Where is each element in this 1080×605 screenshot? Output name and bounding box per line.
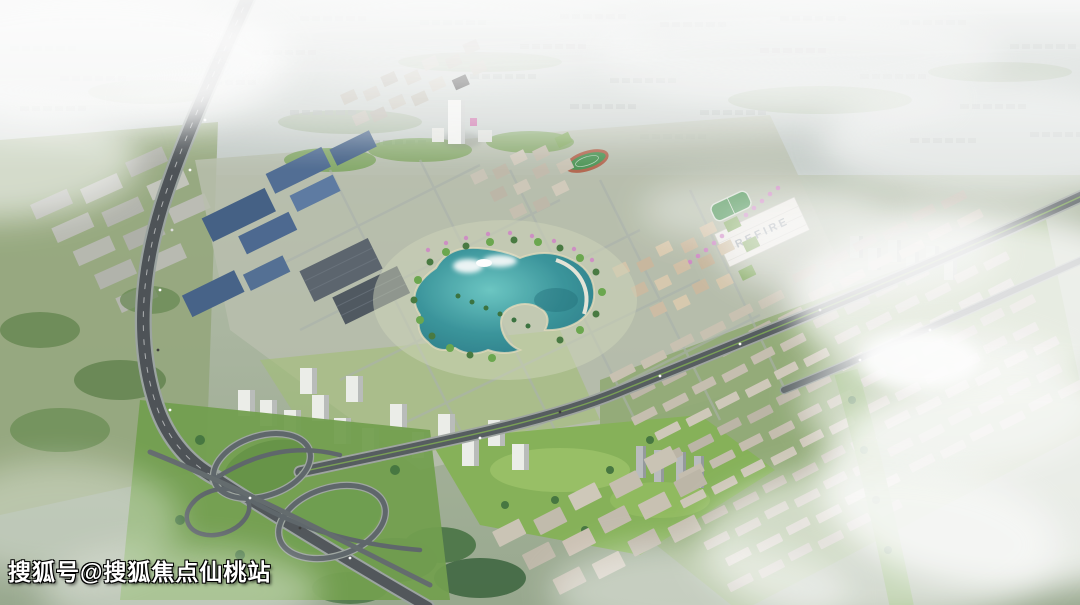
aerial-city-rendering: REFIRE [0, 0, 1080, 605]
watermark: 搜狐号@搜狐焦点仙桃站 [8, 561, 271, 584]
rendering-canvas: REFIRE [0, 0, 1080, 605]
cloud-haze [0, 0, 1080, 605]
